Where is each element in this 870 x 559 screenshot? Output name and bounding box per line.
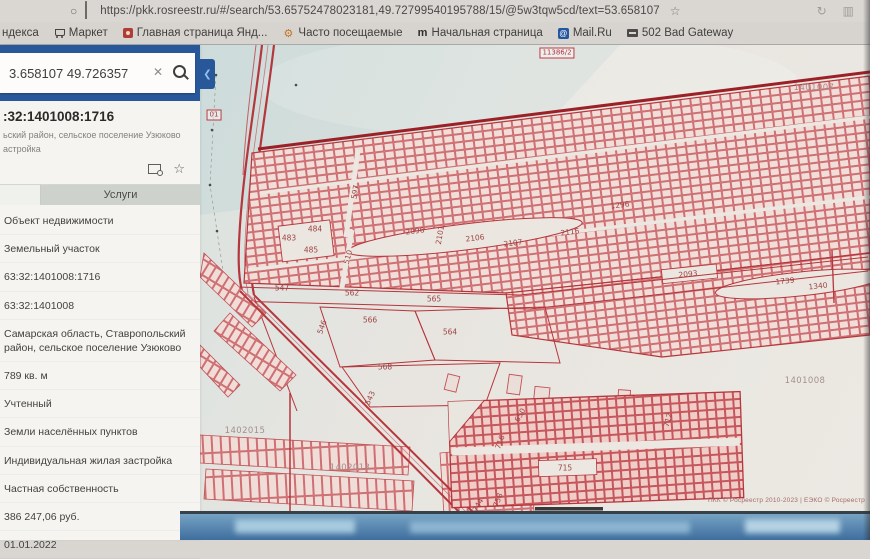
bookmark-label: ндекса bbox=[2, 27, 39, 39]
detail-row: Индивидуальная жилая застройка bbox=[0, 447, 200, 475]
map-attribution: ПКК © Росреестр 2010-2023 | ЕЭКО © Росре… bbox=[708, 497, 865, 504]
mail-icon: @ bbox=[558, 28, 569, 39]
bookmark-label: Часто посещаемые bbox=[298, 27, 402, 39]
bookmark-label: 502 Bad Gateway bbox=[642, 27, 733, 39]
cart-icon bbox=[54, 28, 65, 38]
details-list: Объект недвижимостиЗемельный участок63:3… bbox=[0, 205, 200, 559]
bookmark-item[interactable]: ⚙Часто посещаемые bbox=[282, 27, 402, 40]
bookmark-star-icon[interactable]: ☆ bbox=[670, 4, 681, 18]
taskbar-window-blob bbox=[235, 519, 355, 533]
search-icon[interactable] bbox=[173, 65, 186, 78]
bookmark-item[interactable]: Маркет bbox=[54, 27, 108, 39]
tab-info-stub[interactable] bbox=[0, 185, 41, 205]
map-area[interactable]: 11386/2140100701597483484485510209621012… bbox=[200, 45, 870, 540]
map-scalebar bbox=[535, 507, 603, 511]
app-body: ✕ :32:1401008:1716 ьский район, сельское… bbox=[0, 45, 870, 540]
favorite-star-icon[interactable]: ☆ bbox=[173, 164, 185, 174]
sidebar-collapse-chevron[interactable]: ❮ bbox=[200, 59, 215, 89]
bookmark-item[interactable]: Главная страница Янд... bbox=[123, 27, 268, 39]
detail-row: 63:32:1401008 bbox=[0, 292, 200, 320]
bookmark-item[interactable]: @Mail.Ru bbox=[558, 27, 612, 39]
panels-icon[interactable]: ▥ bbox=[843, 4, 854, 18]
result-address-line1: ьский район, сельское поселение Узюково bbox=[3, 129, 191, 143]
tab-services[interactable]: Услуги bbox=[41, 185, 200, 205]
bookmark-label: Главная страница Янд... bbox=[137, 27, 268, 39]
taskbar[interactable] bbox=[180, 511, 870, 540]
lock-icon[interactable] bbox=[85, 2, 93, 20]
zoom-to-parcel-icon[interactable] bbox=[148, 164, 161, 174]
search-input[interactable] bbox=[0, 53, 195, 93]
parcel-block-south bbox=[448, 392, 744, 508]
bookmark-item[interactable]: mНачальная страница bbox=[418, 27, 543, 39]
sidebar: ✕ :32:1401008:1716 ьский район, сельское… bbox=[0, 45, 200, 540]
url-text[interactable]: https://pkk.rosreestr.ru/#/search/53.657… bbox=[100, 5, 660, 17]
detail-row: Земли населённых пунктов bbox=[0, 418, 200, 446]
search-panel: ✕ bbox=[0, 45, 200, 101]
detail-row: Частная собственность bbox=[0, 475, 200, 503]
result-address-line2: астройка bbox=[3, 143, 191, 157]
detail-row: 63:32:1401008:1716 bbox=[0, 263, 200, 291]
sidebar-tabs: Услуги bbox=[0, 184, 200, 205]
clear-search-icon[interactable]: ✕ bbox=[153, 65, 163, 79]
gear-icon: ⚙ bbox=[282, 27, 294, 40]
detail-row: Объект недвижимости bbox=[0, 207, 200, 235]
search-result-card[interactable]: :32:1401008:1716 ьский район, сельское п… bbox=[0, 101, 200, 184]
letter-m-icon: m bbox=[418, 27, 428, 39]
browser-url-bar: ○ https://pkk.rosreestr.ru/#/search/53.6… bbox=[0, 0, 870, 22]
bookmark-item[interactable]: ндекса bbox=[2, 27, 39, 39]
detail-row: Учтенный bbox=[0, 390, 200, 418]
page-red-icon bbox=[123, 28, 133, 38]
taskbar-window-blob bbox=[410, 521, 690, 533]
cadastral-number: :32:1401008:1716 bbox=[3, 109, 191, 124]
site-info-icon[interactable]: ○ bbox=[70, 4, 77, 18]
detail-row: Земельный участок bbox=[0, 235, 200, 263]
detail-row: 01.01.2022 bbox=[0, 531, 200, 559]
detail-row: 386 247,06 руб. bbox=[0, 503, 200, 531]
taskbar-tray-blob bbox=[745, 519, 840, 533]
history-icon[interactable]: ↻ bbox=[817, 4, 827, 18]
cadastral-map-canvas[interactable] bbox=[200, 45, 870, 515]
bookmark-label: Маркет bbox=[69, 27, 108, 39]
detail-row: 789 кв. м bbox=[0, 362, 200, 390]
bookmarks-list: ндексаМаркетГлавная страница Янд...⚙Част… bbox=[2, 27, 733, 40]
bookmark-label: Начальная страница bbox=[432, 27, 543, 39]
dark-badge-icon bbox=[627, 29, 638, 37]
bookmark-label: Mail.Ru bbox=[573, 27, 612, 39]
detail-row: Самарская область, Ставропольский район,… bbox=[0, 320, 200, 362]
bookmarks-bar: ндексаМаркетГлавная страница Янд...⚙Част… bbox=[0, 22, 870, 45]
bookmark-item[interactable]: 502 Bad Gateway bbox=[627, 27, 733, 39]
